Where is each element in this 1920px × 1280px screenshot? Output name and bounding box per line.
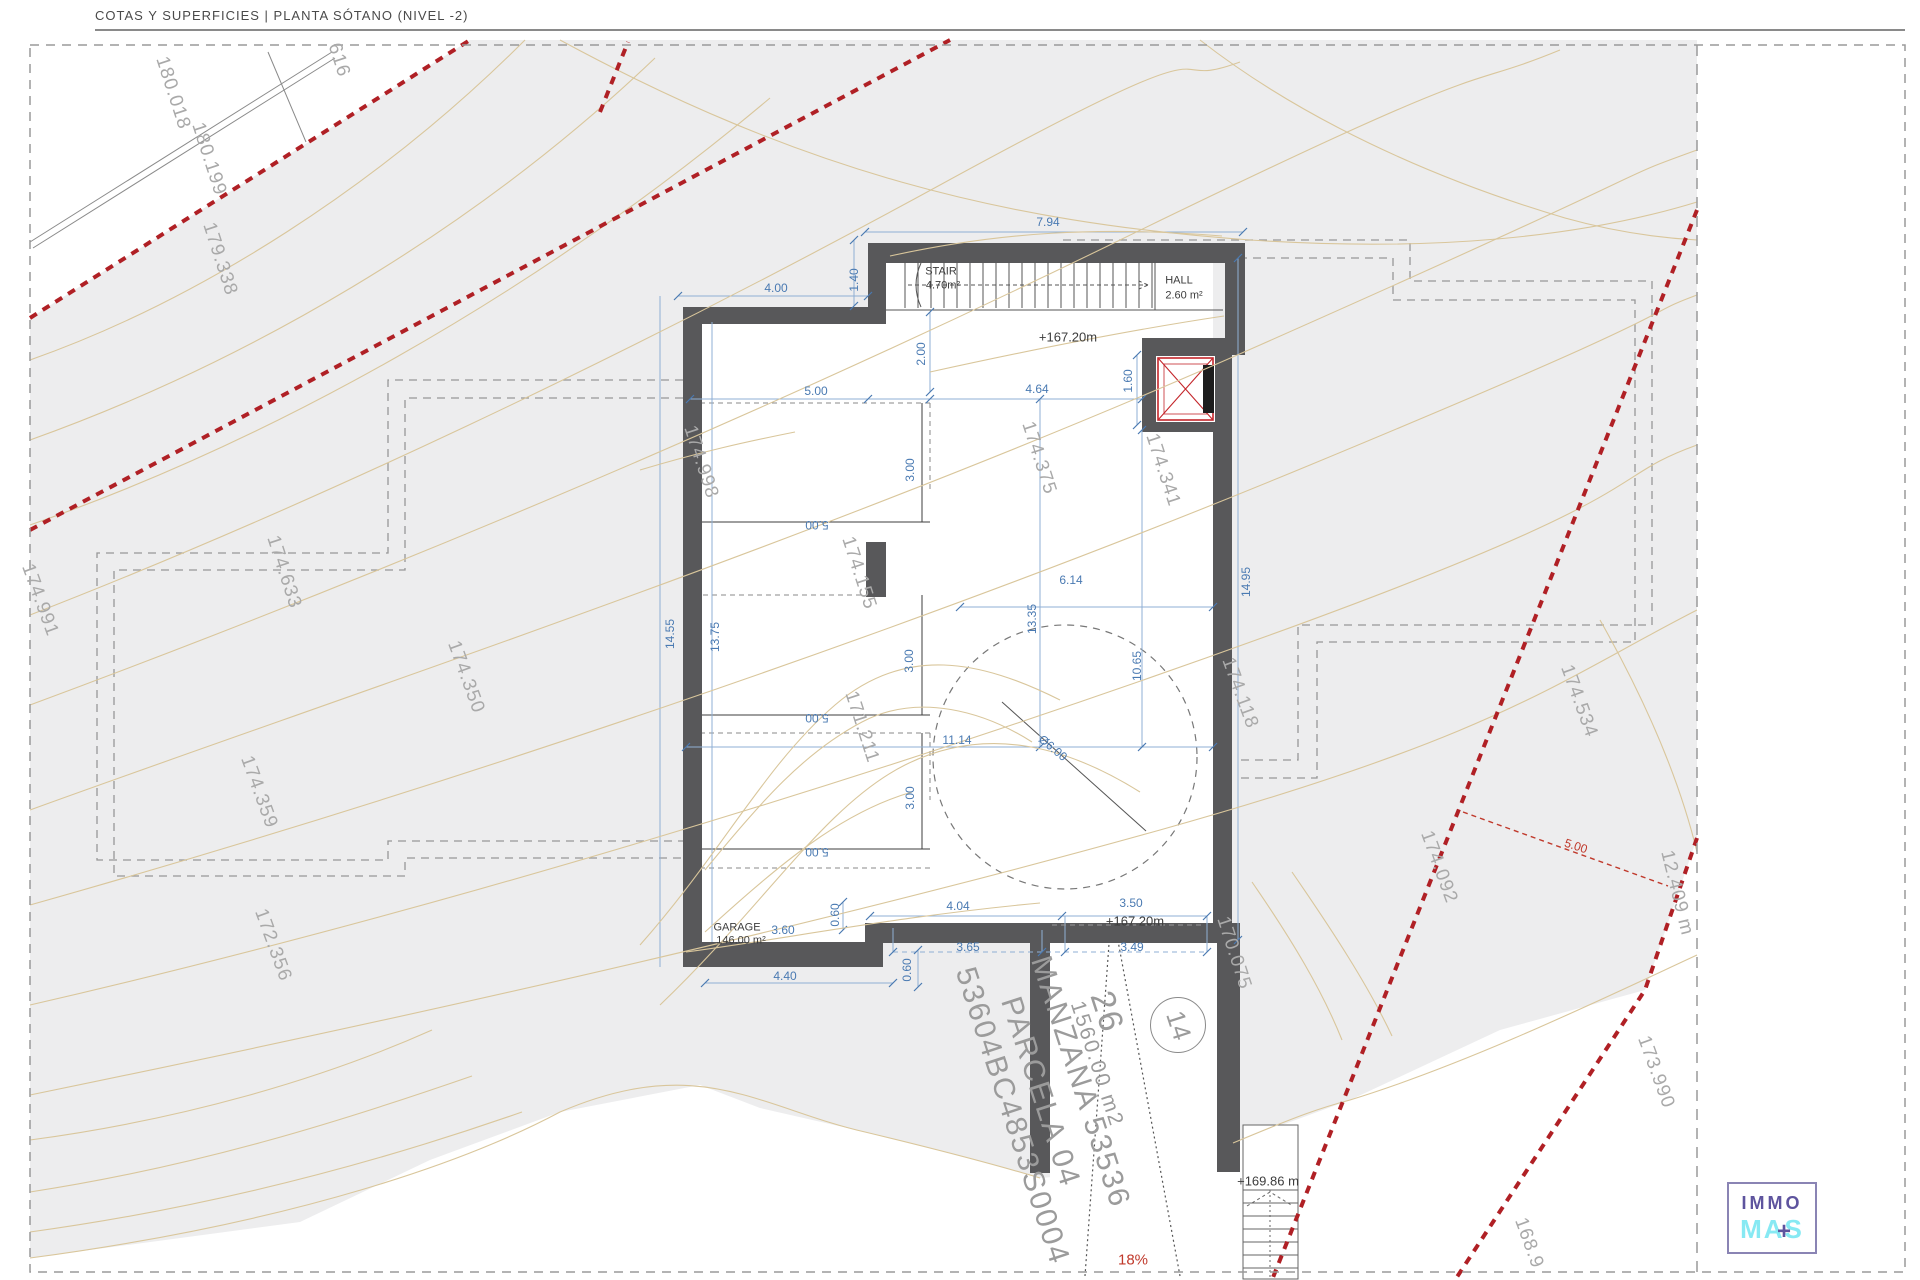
immomas-logo: IMMO MAS +	[1727, 1182, 1817, 1254]
exterior-stair	[1243, 1125, 1298, 1279]
plan-sheet: COTAS Y SUPERFICIES | PLANTA SÓTANO (NIV…	[0, 0, 1920, 1280]
plus-icon: +	[1777, 1218, 1791, 1246]
logo-mas-text: MAS	[1729, 1214, 1815, 1245]
elevator	[1142, 338, 1232, 432]
site-plan-drawing	[0, 0, 1920, 1280]
logo-immo-text: IMMO	[1729, 1193, 1815, 1214]
